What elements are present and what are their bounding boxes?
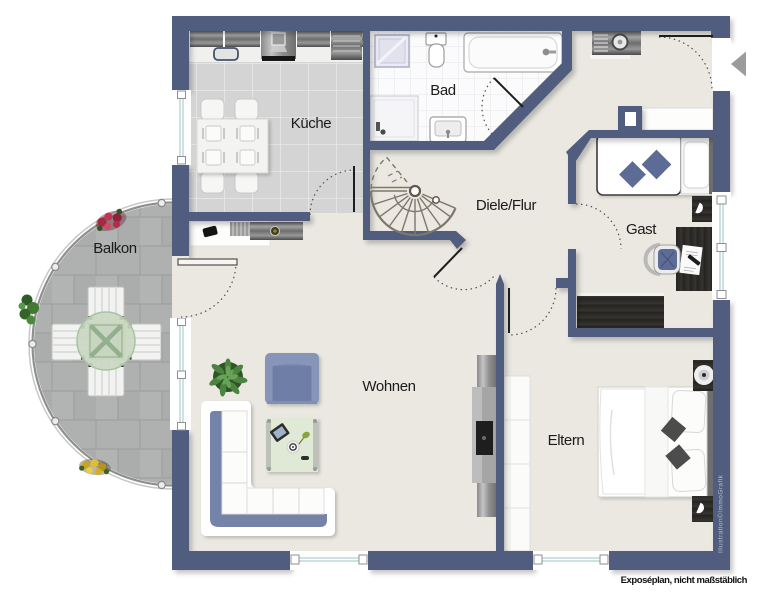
svg-text:Balkon: Balkon	[93, 240, 137, 257]
svg-text:Bad: Bad	[430, 82, 456, 99]
svg-text:Exposéplan, nicht maßstäblich: Exposéplan, nicht maßstäblich	[621, 575, 748, 586]
svg-text:Wohnen: Wohnen	[362, 378, 415, 395]
svg-text:Diele/Flur: Diele/Flur	[476, 197, 537, 214]
svg-text:Eltern: Eltern	[548, 432, 585, 449]
svg-text:Gast: Gast	[626, 221, 657, 238]
svg-text:Illustration©ImmoGrafik: Illustration©ImmoGrafik	[717, 474, 725, 553]
svg-text:Küche: Küche	[291, 115, 332, 132]
